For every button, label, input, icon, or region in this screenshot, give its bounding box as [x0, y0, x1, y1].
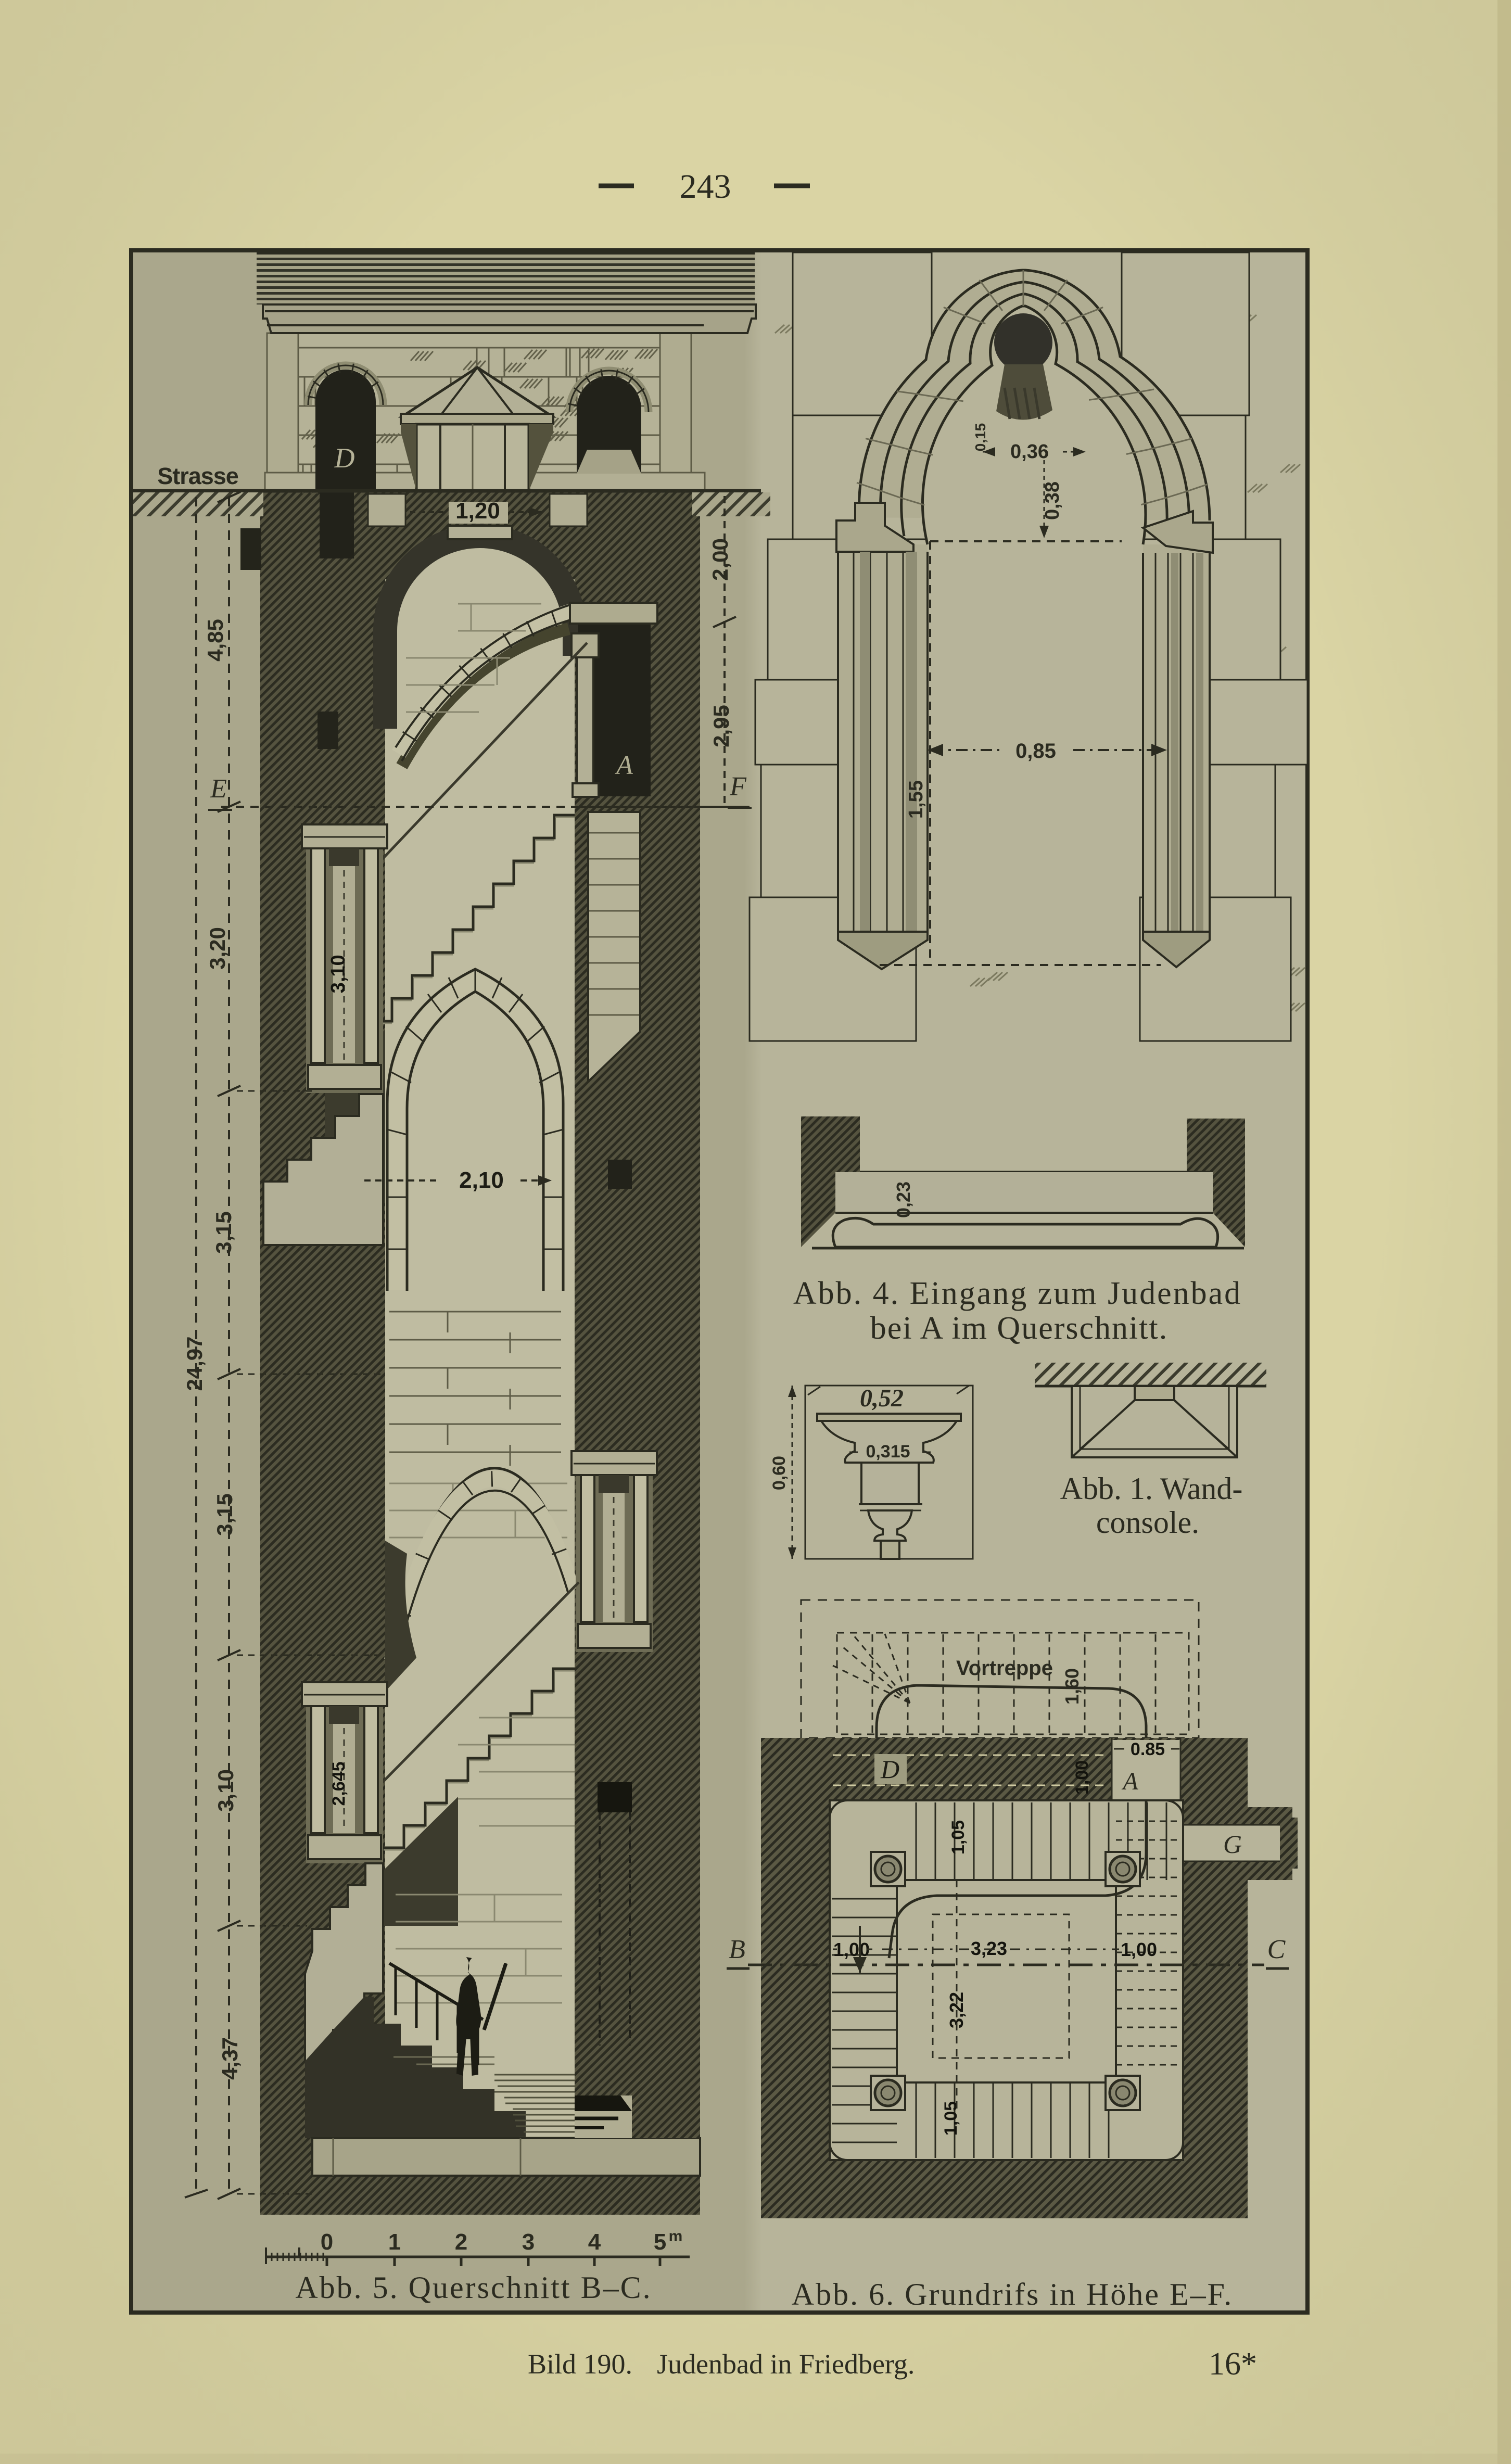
svg-text:F: F — [729, 772, 747, 802]
svg-text:0,15: 0,15 — [972, 423, 988, 452]
svg-text:console.: console. — [1096, 1505, 1199, 1540]
svg-text:1,00: 1,00 — [1121, 1939, 1157, 1960]
svg-text:2,10: 2,10 — [459, 1167, 504, 1193]
svg-text:1,05: 1,05 — [948, 1820, 968, 1855]
svg-text:1,05: 1,05 — [941, 2101, 961, 2136]
svg-text:243: 243 — [680, 168, 731, 206]
svg-text:0,85: 0,85 — [1015, 740, 1056, 763]
svg-text:1,60: 1,60 — [1061, 1668, 1083, 1705]
svg-text:3: 3 — [522, 2229, 535, 2255]
svg-text:Judenbad in Friedberg.: Judenbad in Friedberg. — [657, 2348, 915, 2380]
svg-text:Abb. 5. Querschnitt B–C.: Abb. 5. Querschnitt B–C. — [295, 2270, 652, 2305]
svg-text:2,645: 2,645 — [329, 1761, 349, 1806]
svg-text:bei A im Querschnitt.: bei A im Querschnitt. — [870, 1311, 1168, 1346]
svg-text:3,15: 3,15 — [211, 1211, 236, 1254]
svg-text:D: D — [880, 1755, 899, 1784]
svg-text:2,95: 2,95 — [709, 705, 733, 747]
svg-text:0,60: 0,60 — [769, 1456, 789, 1490]
svg-text:D: D — [334, 442, 355, 474]
svg-text:Vortreppe: Vortreppe — [956, 1657, 1053, 1680]
svg-text:Bild 190.: Bild 190. — [528, 2348, 632, 2380]
svg-text:1,20: 1,20 — [455, 498, 500, 524]
svg-text:A: A — [615, 751, 633, 780]
svg-text:4: 4 — [588, 2229, 601, 2255]
svg-text:0,52: 0,52 — [860, 1385, 904, 1412]
svg-text:2,00: 2,00 — [708, 538, 732, 581]
svg-text:3,10: 3,10 — [327, 955, 349, 993]
svg-text:0,23: 0,23 — [893, 1182, 914, 1218]
svg-text:1: 1 — [388, 2229, 401, 2255]
svg-text:16*: 16* — [1209, 2346, 1257, 2382]
svg-text:2: 2 — [455, 2229, 467, 2255]
svg-text:24,97: 24,97 — [182, 1336, 207, 1391]
svg-text:Abb. 4. Eingang zum Judenbad: Abb. 4. Eingang zum Judenbad — [793, 1276, 1242, 1311]
svg-text:0,36: 0,36 — [1010, 441, 1049, 463]
svg-text:Strasse: Strasse — [157, 463, 238, 489]
svg-text:3,10: 3,10 — [213, 1769, 238, 1812]
svg-text:0.85: 0.85 — [1131, 1739, 1165, 1759]
svg-text:B: B — [729, 1935, 745, 1964]
svg-text:A: A — [1121, 1768, 1138, 1795]
svg-text:3,20: 3,20 — [205, 927, 230, 970]
svg-text:Abb. 1. Wand-: Abb. 1. Wand- — [1060, 1471, 1243, 1506]
svg-text:4,37: 4,37 — [218, 2037, 242, 2080]
svg-text:0,315: 0,315 — [866, 1442, 910, 1462]
svg-text:m: m — [669, 2228, 683, 2245]
svg-text:1,55: 1,55 — [905, 780, 927, 819]
svg-text:Abb. 6. Grundrifs in Höhe E–: Abb. 6. Grundrifs in Höhe E–F. — [792, 2277, 1233, 2311]
svg-text:C: C — [1267, 1935, 1286, 1964]
svg-text:0: 0 — [321, 2229, 333, 2255]
svg-text:3,15: 3,15 — [212, 1493, 237, 1536]
svg-text:E: E — [210, 774, 227, 804]
svg-text:1,00: 1,00 — [833, 1939, 870, 1960]
svg-text:G: G — [1223, 1830, 1242, 1859]
svg-text:1,00: 1,00 — [1072, 1760, 1092, 1795]
svg-text:4,85: 4,85 — [203, 619, 227, 662]
svg-text:5: 5 — [654, 2229, 666, 2255]
